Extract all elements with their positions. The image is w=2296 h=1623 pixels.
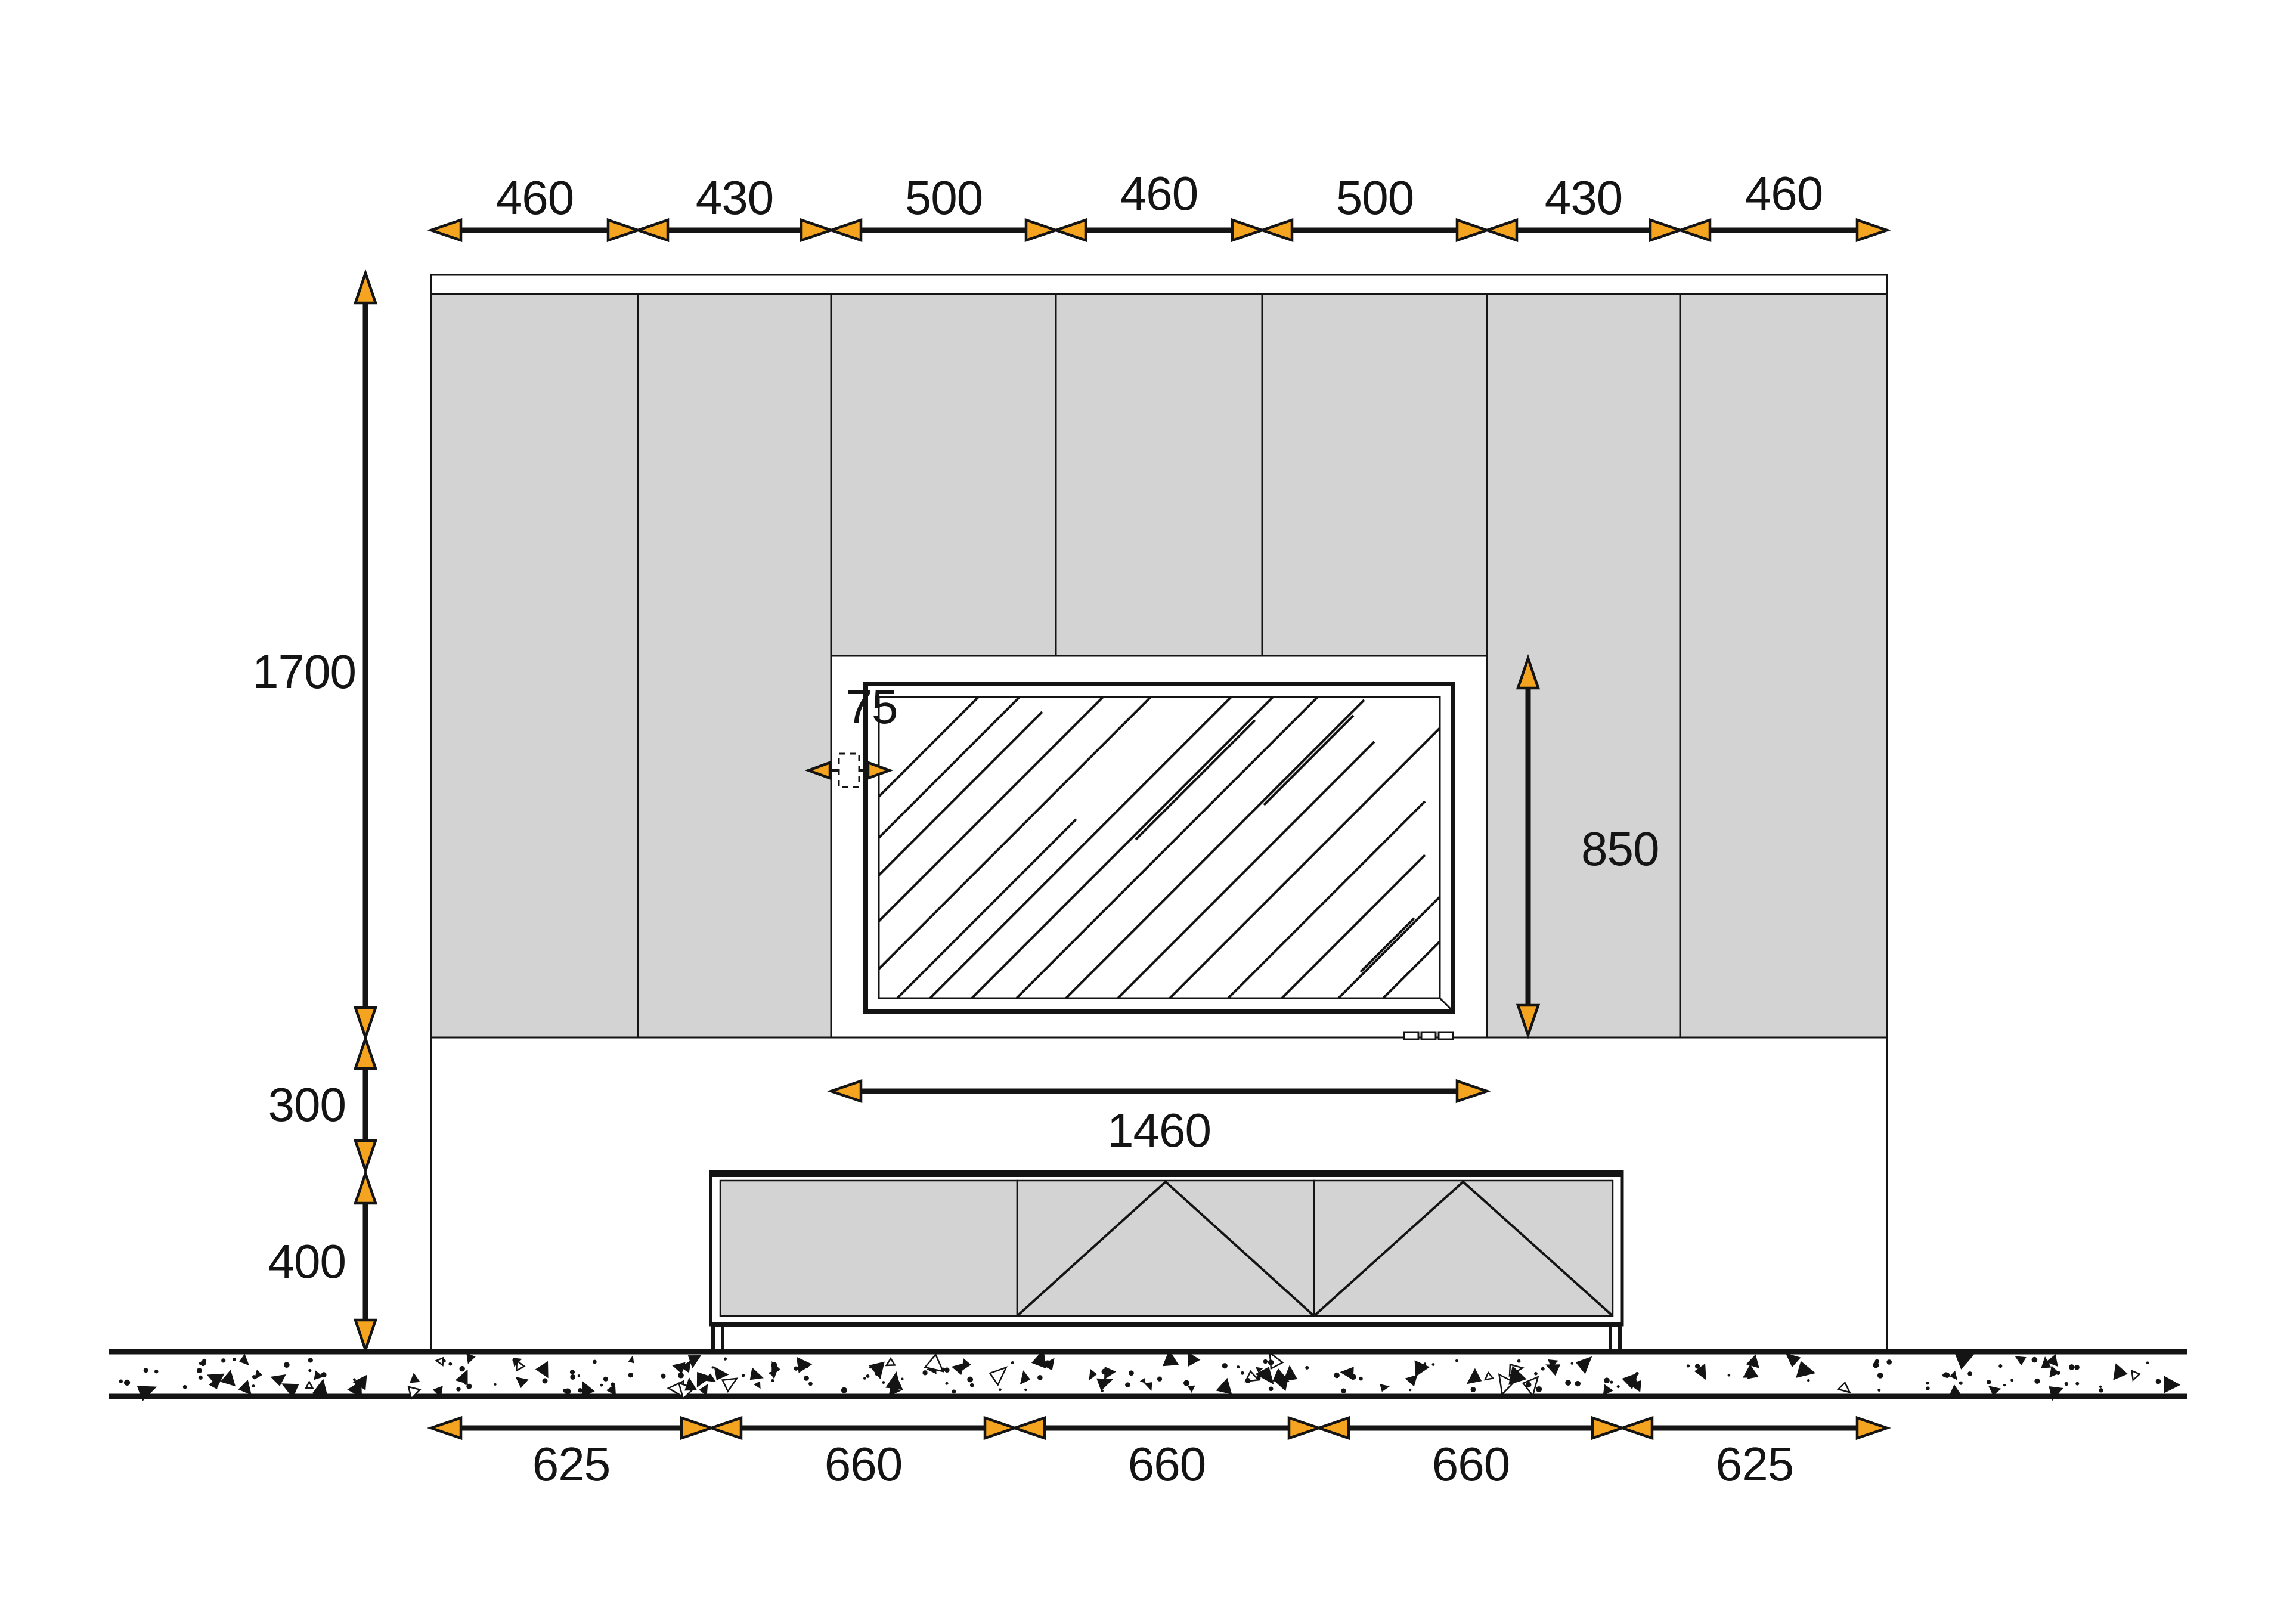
dimension-arrowhead-icon xyxy=(1487,220,1517,240)
floor-chip xyxy=(2015,1356,2026,1365)
floor-speck xyxy=(1517,1359,1521,1363)
dimension-arrowhead-icon xyxy=(355,1039,376,1068)
floor-speck xyxy=(794,1367,798,1371)
floor-speck xyxy=(805,1364,808,1368)
dimension-arrowhead-icon xyxy=(431,1418,461,1438)
floor-speck xyxy=(863,1377,866,1379)
floor-chip xyxy=(436,1358,444,1365)
floor-speck xyxy=(1541,1367,1545,1371)
floor-speck xyxy=(1687,1364,1690,1367)
floor-speck xyxy=(443,1359,446,1362)
dim-label-niche-height: 850 xyxy=(1581,825,1659,873)
dimension-arrowhead-icon xyxy=(1015,1418,1045,1438)
floor-speck xyxy=(1534,1372,1538,1376)
tv-connector-tab xyxy=(1439,1032,1453,1039)
floor xyxy=(109,1349,2187,1401)
floor-speck xyxy=(1695,1364,1700,1368)
floor-speck xyxy=(563,1389,567,1393)
floor-terrazzo-texture xyxy=(119,1349,2181,1401)
floor-speck xyxy=(1610,1380,1613,1383)
floor-chip xyxy=(516,1377,529,1388)
floor-speck xyxy=(804,1376,809,1381)
floor-speck xyxy=(199,1376,203,1380)
floor-speck xyxy=(308,1358,313,1362)
wall-top-cap xyxy=(431,275,1887,294)
floor-speck xyxy=(200,1361,206,1366)
dim-label-top-5: 500 xyxy=(1336,174,1414,222)
dim-label-top-3: 500 xyxy=(905,174,983,222)
floor-chip xyxy=(2164,1376,2181,1393)
floor-chip xyxy=(516,1361,524,1371)
floor-speck xyxy=(1536,1386,1542,1392)
floor-speck xyxy=(922,1370,927,1375)
floor-speck xyxy=(1604,1377,1610,1383)
dim-label-bottom-2: 660 xyxy=(825,1441,902,1488)
floor-speck xyxy=(600,1384,603,1387)
floor-speck xyxy=(494,1383,497,1386)
floor-speck xyxy=(1024,1389,1027,1391)
floor-speck xyxy=(1959,1382,1963,1385)
floor-speck xyxy=(2099,1388,2103,1392)
dim-label-top-6: 430 xyxy=(1545,174,1622,222)
floor-chip xyxy=(887,1358,895,1365)
floor-speck xyxy=(1565,1380,1571,1386)
dimension-arrowhead-icon xyxy=(831,220,861,240)
dim-label-top-2: 430 xyxy=(696,174,773,222)
dimension-arrowhead-icon xyxy=(1857,220,1887,240)
floor-speck xyxy=(2010,1379,2013,1382)
dimension-arrowhead-icon xyxy=(1680,220,1710,240)
floor-speck xyxy=(1987,1380,1991,1384)
floor-speck xyxy=(866,1374,870,1378)
dim-label-bottom-3: 660 xyxy=(1128,1441,1206,1488)
dim-label-sideboard-height: 400 xyxy=(268,1238,346,1286)
floor-speck xyxy=(967,1377,973,1383)
dim-label-niche-width: 1460 xyxy=(1107,1107,1211,1154)
dimension-arrowhead-icon xyxy=(638,220,668,240)
floor-chip xyxy=(869,1362,885,1380)
floor-chip xyxy=(672,1362,686,1374)
floor-speck xyxy=(2146,1361,2149,1364)
floor-speck xyxy=(1409,1389,1411,1391)
floor-speck xyxy=(628,1373,633,1377)
sideboard-door-middle xyxy=(1017,1181,1314,1316)
floor-chip xyxy=(1380,1384,1390,1392)
dimension-arrowhead-icon xyxy=(711,1418,741,1438)
dimension-arrowhead-icon xyxy=(1289,1418,1319,1438)
floor-speck xyxy=(1263,1359,1268,1364)
floor-speck xyxy=(1359,1377,1363,1381)
floor-speck xyxy=(1183,1380,1189,1386)
floor-speck xyxy=(712,1366,714,1368)
floor-speck xyxy=(1305,1366,1309,1370)
tv-connector-tab xyxy=(1404,1032,1418,1039)
floor-chip xyxy=(1576,1356,1592,1374)
floor-speck xyxy=(2069,1364,2075,1370)
floor-speck xyxy=(308,1369,311,1372)
floor-speck xyxy=(119,1380,123,1383)
dim-label-bottom-4: 660 xyxy=(1432,1441,1510,1488)
floor-speck xyxy=(1526,1382,1531,1387)
floor-speck xyxy=(2065,1382,2068,1386)
floor-chip xyxy=(2132,1371,2140,1380)
dimension-arrowhead-icon xyxy=(355,1141,376,1170)
floor-speck xyxy=(1926,1386,1930,1390)
floor-chip xyxy=(466,1353,475,1364)
floor-speck xyxy=(2034,1379,2040,1384)
dim-label-tv-gap: 75 xyxy=(846,683,898,731)
floor-speck xyxy=(1432,1363,1435,1366)
floor-speck xyxy=(1101,1389,1104,1392)
floor-chip xyxy=(990,1367,1006,1384)
floor-speck xyxy=(456,1387,460,1391)
floor-speck xyxy=(1245,1378,1251,1383)
floor-speck xyxy=(2032,1357,2038,1363)
floor-speck xyxy=(543,1378,548,1383)
floor-chip xyxy=(723,1379,737,1392)
floor-speck xyxy=(221,1358,225,1362)
dimension-arrowhead-icon xyxy=(1650,220,1680,240)
floor-speck xyxy=(771,1379,774,1382)
floor-chip xyxy=(770,1371,777,1379)
floor-speck xyxy=(448,1362,452,1366)
dimension-arrowhead-icon xyxy=(1457,1081,1487,1101)
floor-chip xyxy=(1405,1375,1418,1387)
floor-speck xyxy=(611,1382,615,1386)
floor-speck xyxy=(570,1370,575,1374)
floor-chip xyxy=(2113,1363,2128,1380)
floor-chip xyxy=(797,1357,812,1373)
dimension-arrowhead-icon xyxy=(1592,1418,1622,1438)
floor-chip xyxy=(255,1370,262,1380)
floor-speck xyxy=(1873,1362,1879,1368)
floor-speck xyxy=(460,1366,465,1371)
floor-speck xyxy=(578,1388,582,1393)
floor-speck xyxy=(1942,1373,1946,1377)
dimension-arrowhead-icon xyxy=(1457,220,1487,240)
floor-chip xyxy=(1020,1370,1031,1384)
dim-label-top-7: 460 xyxy=(1745,170,1823,218)
floor-speck xyxy=(1604,1387,1609,1392)
floor-speck xyxy=(1807,1379,1810,1382)
floor-speck xyxy=(1268,1359,1274,1365)
floor-speck xyxy=(1222,1363,1228,1368)
floor-speck xyxy=(124,1380,130,1386)
floor-speck xyxy=(252,1384,255,1387)
dimension-arrowhead-icon xyxy=(1622,1418,1652,1438)
floor-speck xyxy=(1241,1371,1244,1375)
gap-dim-box xyxy=(839,754,859,787)
floor-speck xyxy=(1617,1385,1620,1388)
floor-chip xyxy=(1104,1367,1116,1380)
floor-speck xyxy=(1237,1365,1240,1368)
floor-chip xyxy=(1089,1369,1097,1380)
floor-speck xyxy=(901,1377,903,1380)
floor-chip xyxy=(306,1382,312,1389)
floor-speck xyxy=(1129,1370,1134,1376)
floor-speck xyxy=(1471,1387,1476,1392)
dimension-arrowhead-icon xyxy=(801,220,831,240)
dim-label-top-4: 460 xyxy=(1120,170,1198,218)
floor-speck xyxy=(2074,1365,2080,1370)
floor-chip xyxy=(1786,1353,1801,1367)
dimension-arrowhead-icon xyxy=(431,220,461,240)
floor-chip xyxy=(1467,1368,1482,1384)
floor-speck xyxy=(724,1358,727,1361)
floor-chip xyxy=(1796,1361,1815,1378)
floor-speck xyxy=(197,1368,202,1373)
floor-speck xyxy=(1125,1382,1130,1387)
floor-speck xyxy=(183,1385,187,1389)
floor-chip xyxy=(220,1370,236,1386)
floor-speck xyxy=(1334,1373,1339,1378)
floor-chip xyxy=(1485,1373,1493,1380)
floor-speck xyxy=(321,1372,327,1377)
floor-chip xyxy=(1144,1382,1152,1391)
dimension-arrowhead-icon xyxy=(681,1418,711,1438)
dimension-arrowhead-icon xyxy=(355,1320,376,1350)
floor-speck xyxy=(808,1382,813,1386)
floor-speck xyxy=(742,1374,745,1377)
dimension-arrowhead-icon xyxy=(1232,220,1262,240)
floor-chip xyxy=(754,1381,761,1389)
floor-speck xyxy=(144,1368,148,1373)
floor-speck xyxy=(1350,1374,1356,1380)
dimension-arrowhead-icon xyxy=(1319,1418,1349,1438)
floor-speck xyxy=(1269,1386,1274,1391)
dim-label-gap-height: 300 xyxy=(268,1081,346,1129)
floor-speck xyxy=(1926,1382,1929,1384)
floor-speck xyxy=(593,1360,597,1364)
floor-speck xyxy=(882,1381,885,1384)
floor-speck xyxy=(464,1382,468,1385)
floor-speck xyxy=(875,1371,879,1376)
floor-chip xyxy=(1950,1371,1957,1380)
floor-speck xyxy=(2099,1386,2102,1388)
floor-speck xyxy=(154,1370,158,1373)
drawing-layer xyxy=(0,0,2296,1623)
floor-chip xyxy=(1283,1365,1297,1381)
floor-chip xyxy=(1188,1386,1195,1393)
dimension-arrowhead-icon xyxy=(355,1008,376,1037)
tv-connector-tab xyxy=(1421,1032,1436,1039)
floor-speck xyxy=(952,1389,956,1393)
floor-chip xyxy=(684,1377,697,1391)
floor-speck xyxy=(1886,1359,1892,1365)
floor-speck xyxy=(2056,1371,2060,1375)
floor-chip xyxy=(1415,1360,1430,1377)
floor-speck xyxy=(1157,1377,1162,1382)
floor-speck xyxy=(1424,1362,1427,1365)
floor-speck xyxy=(252,1375,256,1379)
floor-speck xyxy=(970,1383,974,1387)
floor-speck xyxy=(233,1358,236,1361)
floor-speck xyxy=(1635,1372,1639,1376)
floor-speck xyxy=(999,1388,1002,1391)
floor-chip xyxy=(1140,1378,1146,1383)
floor-speck xyxy=(1342,1389,1346,1393)
floor-speck xyxy=(1455,1359,1458,1362)
floor-speck xyxy=(541,1368,547,1373)
floor-chip xyxy=(1216,1378,1232,1395)
floor-speck xyxy=(1877,1373,1883,1379)
floor-chip xyxy=(628,1355,634,1363)
sideboard-door-right xyxy=(1314,1181,1613,1316)
sideboard xyxy=(711,1172,1622,1351)
floor-speck xyxy=(1728,1374,1731,1377)
dimension-arrowhead-icon xyxy=(608,220,638,240)
dimension-arrowhead-icon xyxy=(831,1081,861,1101)
dimension-arrowhead-icon xyxy=(1262,220,1292,240)
floor-speck xyxy=(678,1373,684,1379)
floor-chip xyxy=(239,1353,249,1365)
dimension-arrowhead-icon xyxy=(1056,220,1086,240)
dim-label-bottom-1: 625 xyxy=(532,1441,610,1488)
floor-speck xyxy=(941,1368,946,1372)
dim-label-top-1: 460 xyxy=(496,174,574,222)
floor-chip xyxy=(962,1358,971,1371)
floor-speck xyxy=(578,1374,580,1377)
floor-chip xyxy=(1950,1384,1962,1395)
floor-speck xyxy=(2003,1384,2006,1386)
floor-speck xyxy=(1011,1361,1014,1364)
floor-chip xyxy=(1746,1355,1759,1368)
floor-chip xyxy=(1955,1353,1975,1370)
floor-chip xyxy=(714,1367,729,1380)
floor-speck xyxy=(945,1382,948,1385)
floor-speck xyxy=(2075,1382,2079,1386)
dim-label-bottom-5: 625 xyxy=(1716,1441,1793,1488)
floor-speck xyxy=(2156,1379,2161,1384)
floor-speck xyxy=(1998,1364,2002,1368)
floor-speck xyxy=(1037,1375,1043,1380)
floor-chip xyxy=(410,1373,420,1383)
dimension-arrowhead-icon xyxy=(985,1418,1015,1438)
dimension-arrowhead-icon xyxy=(355,1173,376,1203)
floor-speck xyxy=(570,1374,575,1380)
dimension-arrowhead-icon xyxy=(355,273,376,303)
floor-speck xyxy=(1571,1362,1573,1365)
floor-speck xyxy=(1575,1381,1581,1387)
floor-speck xyxy=(603,1377,608,1382)
dimension-arrowhead-icon xyxy=(1026,220,1056,240)
sideboard-door-left xyxy=(720,1181,1017,1316)
floor-speck xyxy=(869,1366,872,1368)
dimension-arrowhead-icon xyxy=(1857,1418,1887,1438)
dim-label-wall-height: 1700 xyxy=(252,648,356,696)
floor-speck xyxy=(353,1378,356,1381)
floor-speck xyxy=(284,1362,290,1368)
floor-chip xyxy=(1838,1383,1849,1392)
floor-speck xyxy=(661,1374,665,1379)
floor-chip xyxy=(1096,1379,1113,1391)
floor-speck xyxy=(1045,1360,1050,1365)
floor-speck xyxy=(1967,1371,1972,1376)
tv-wall-elevation-drawing: 460 430 500 460 500 430 460 1700 300 400… xyxy=(0,0,2296,1623)
floor-speck xyxy=(1877,1389,1880,1392)
floor-speck xyxy=(841,1387,847,1393)
floor-chip xyxy=(238,1380,252,1395)
floor-chip xyxy=(750,1367,764,1380)
